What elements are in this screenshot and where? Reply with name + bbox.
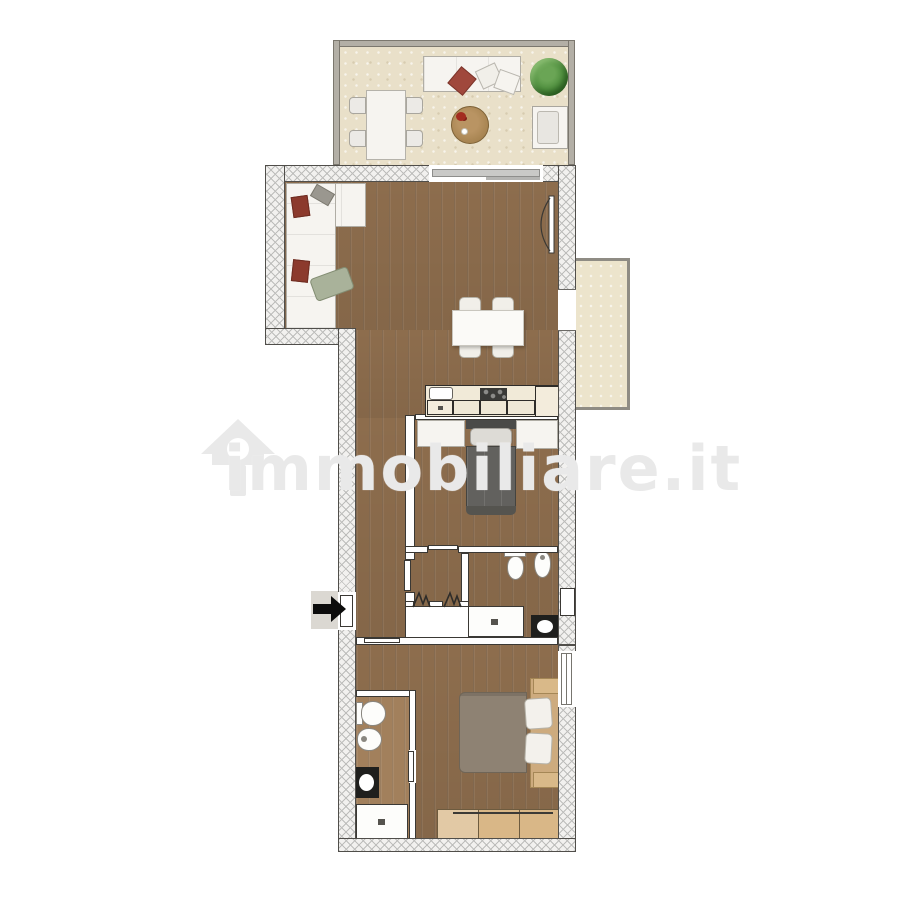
living-door-leaf bbox=[549, 196, 554, 253]
closet-bifold-door-2 bbox=[444, 593, 461, 607]
closet-bifold-door-1 bbox=[413, 593, 430, 607]
entrance-arrow-icon bbox=[313, 596, 346, 622]
floor-plan: immobiliare.it bbox=[0, 0, 900, 900]
detail-overlay bbox=[0, 0, 900, 900]
